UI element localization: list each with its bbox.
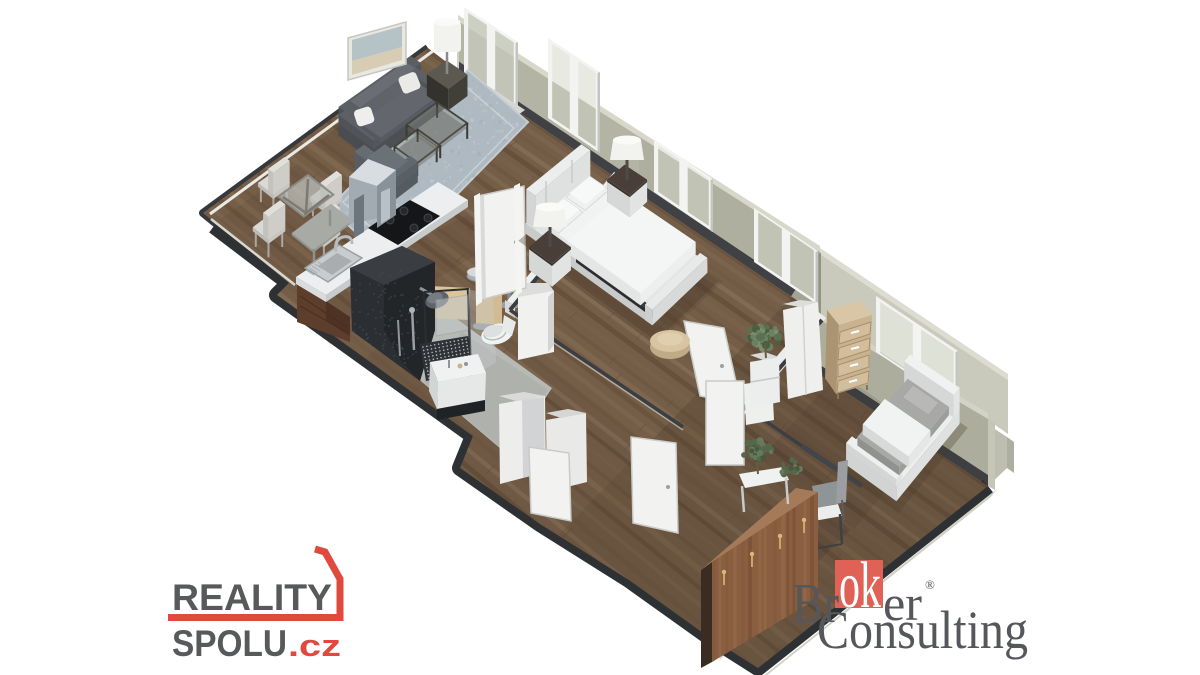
svg-text:SPOLU: SPOLU xyxy=(172,623,287,664)
svg-text:®: ® xyxy=(925,577,935,592)
svg-text:Consulting: Consulting xyxy=(817,600,1028,660)
svg-text:.cz: .cz xyxy=(288,628,341,663)
svg-text:REALITY: REALITY xyxy=(172,577,332,618)
